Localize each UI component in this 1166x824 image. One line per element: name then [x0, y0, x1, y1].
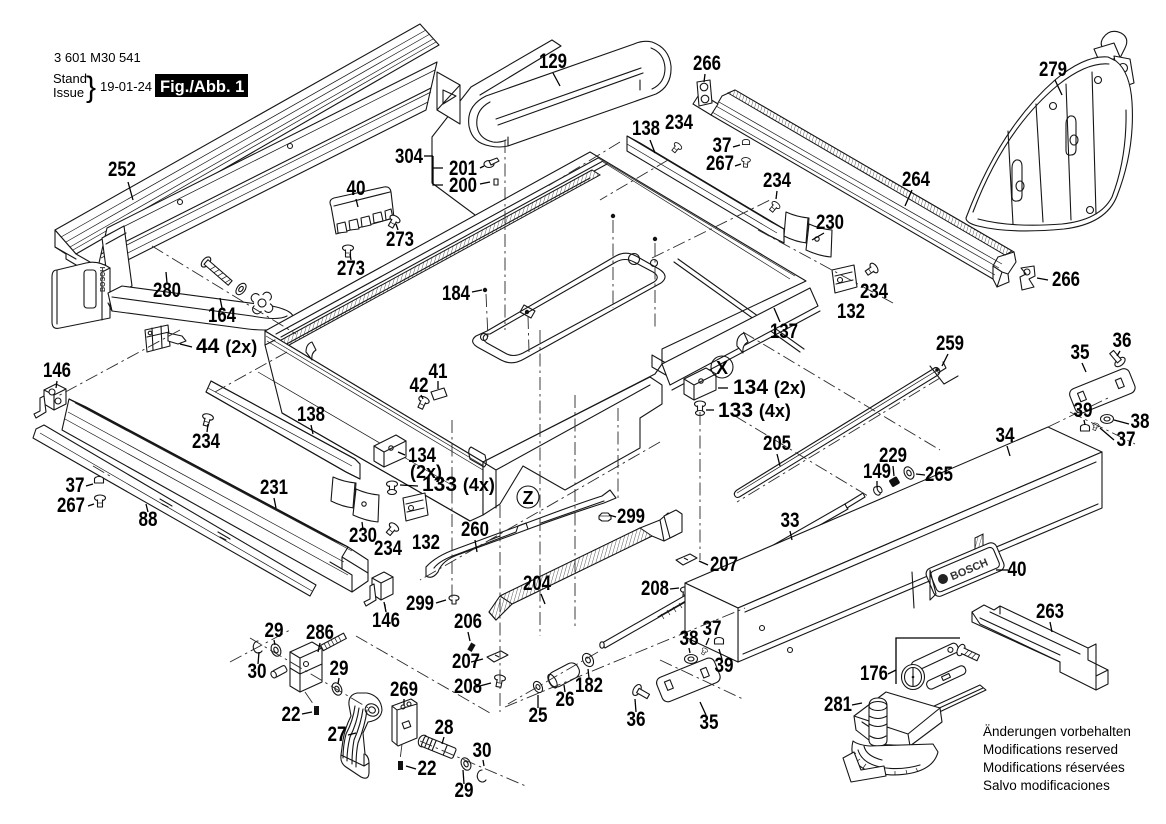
svg-text:3 601 M30 541: 3 601 M30 541: [54, 50, 141, 65]
svg-text:267: 267: [57, 494, 85, 517]
svg-text:BOSCH: BOSCH: [100, 267, 107, 292]
svg-text:19-01-24: 19-01-24: [100, 79, 152, 94]
svg-text:}: }: [86, 71, 96, 104]
svg-text:29: 29: [265, 619, 284, 642]
svg-text:39: 39: [1074, 399, 1093, 422]
svg-text:35: 35: [1071, 341, 1090, 364]
svg-text:133 (4x): 133 (4x): [422, 473, 495, 496]
svg-text:259: 259: [936, 332, 964, 355]
svg-text:137: 137: [770, 320, 798, 343]
svg-text:Z: Z: [523, 488, 534, 508]
svg-text:286: 286: [306, 621, 334, 644]
svg-text:129: 129: [539, 50, 567, 73]
svg-text:X: X: [716, 358, 728, 378]
svg-text:Salvo modificaciones: Salvo modificaciones: [983, 778, 1110, 793]
svg-text:206: 206: [454, 610, 482, 633]
svg-text:33: 33: [781, 509, 800, 532]
svg-text:34: 34: [996, 424, 1015, 447]
svg-text:37: 37: [703, 617, 722, 640]
svg-text:264: 264: [902, 168, 930, 191]
svg-text:22: 22: [418, 757, 437, 780]
svg-text:138: 138: [297, 403, 325, 426]
svg-text:Stand: Stand: [53, 71, 87, 86]
svg-text:30: 30: [473, 739, 492, 762]
svg-text:22: 22: [282, 703, 301, 726]
svg-text:281: 281: [824, 693, 852, 716]
svg-text:27: 27: [328, 723, 347, 746]
svg-text:149: 149: [863, 460, 891, 483]
svg-text:Modifications réservées: Modifications réservées: [983, 760, 1125, 775]
svg-text:234: 234: [665, 111, 693, 134]
svg-text:207: 207: [710, 553, 738, 576]
svg-text:44 (2x): 44 (2x): [196, 335, 257, 358]
svg-text:263: 263: [1036, 600, 1064, 623]
svg-text:40: 40: [347, 177, 366, 200]
svg-text:252: 252: [108, 158, 136, 181]
svg-text:273: 273: [386, 228, 414, 251]
svg-text:Änderungen vorbehalten: Änderungen vorbehalten: [983, 724, 1131, 739]
svg-text:Issue: Issue: [53, 85, 84, 100]
svg-text:35: 35: [700, 711, 719, 734]
svg-text:299: 299: [617, 505, 645, 528]
svg-text:273: 273: [337, 257, 365, 280]
svg-text:266: 266: [693, 52, 721, 75]
svg-text:146: 146: [43, 359, 71, 382]
svg-text:36: 36: [1113, 329, 1132, 352]
svg-text:28: 28: [435, 716, 454, 739]
svg-text:200: 200: [449, 174, 477, 197]
svg-text:39: 39: [715, 654, 734, 677]
svg-text:230: 230: [816, 211, 844, 234]
svg-text:37: 37: [1117, 428, 1136, 451]
svg-text:41: 41: [429, 360, 448, 383]
svg-text:38: 38: [680, 627, 699, 650]
svg-text:146: 146: [372, 609, 400, 632]
svg-text:29: 29: [330, 657, 349, 680]
svg-text:269: 269: [390, 678, 418, 701]
svg-text:279: 279: [1039, 58, 1067, 81]
svg-text:176: 176: [860, 662, 888, 685]
svg-text:40: 40: [1008, 558, 1027, 581]
svg-text:30: 30: [248, 660, 267, 683]
svg-text:132: 132: [412, 531, 440, 554]
svg-text:266: 266: [1052, 268, 1080, 291]
svg-text:42: 42: [410, 374, 429, 397]
svg-text:231: 231: [260, 476, 288, 499]
svg-text:267: 267: [706, 152, 734, 175]
svg-text:138: 138: [632, 117, 660, 140]
svg-text:Modifications reserved: Modifications reserved: [983, 742, 1118, 757]
svg-text:260: 260: [461, 518, 489, 541]
svg-text:Fig./Abb. 1: Fig./Abb. 1: [160, 78, 244, 96]
svg-text:133 (4x): 133 (4x): [718, 399, 791, 422]
svg-text:134 (2x): 134 (2x): [733, 376, 806, 399]
svg-text:234: 234: [374, 537, 402, 560]
svg-text:208: 208: [641, 577, 669, 600]
svg-text:299: 299: [406, 592, 434, 615]
svg-text:204: 204: [523, 572, 551, 595]
svg-text:265: 265: [925, 463, 953, 486]
svg-text:234: 234: [763, 169, 791, 192]
svg-text:234: 234: [192, 430, 220, 453]
svg-text:304: 304: [395, 145, 423, 168]
svg-text:207: 207: [452, 650, 480, 673]
svg-text:205: 205: [763, 432, 791, 455]
svg-text:184: 184: [442, 282, 470, 305]
svg-text:132: 132: [837, 300, 865, 323]
